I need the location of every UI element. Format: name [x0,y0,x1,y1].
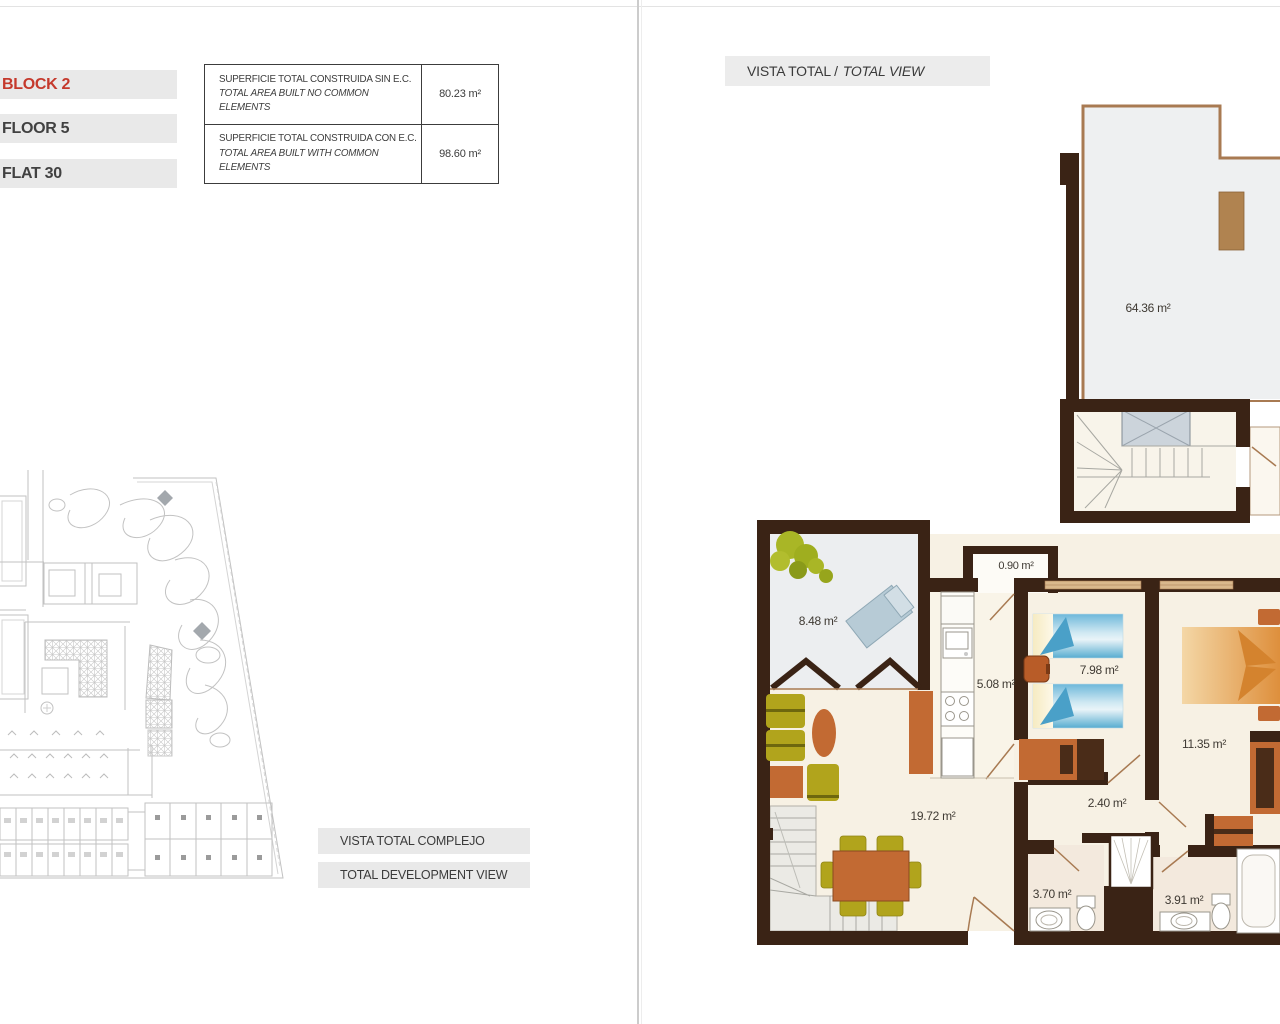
row2-title-en: TOTAL AREA BUILT WITH COMMON ELEMENTS [219,147,421,175]
area-summary-table: SUPERFICIE TOTAL CONSTRUIDA SIN E.C. TOT… [204,64,499,184]
floor-label: FLOOR 5 [2,120,69,138]
armchair [807,764,839,801]
dining-table [833,851,909,901]
storage-area-label: 0.90 m² [998,560,1033,572]
row2-value: 98.60 m² [422,125,498,184]
row1-value: 80.23 m² [422,65,498,124]
page-top-rule [0,6,1280,7]
table-row: SUPERFICIE TOTAL CONSTRUIDA SIN E.C. TOT… [205,65,498,125]
dresser [1019,739,1104,780]
nightstand [1024,656,1050,682]
twin-bed [1033,684,1123,728]
kitchen-area-label: 5.08 m² [977,677,1016,691]
flat-floor-plan [640,40,1280,960]
nightstand [1258,609,1280,625]
armchair [766,730,805,761]
bathroom1-area-label: 3.70 m² [1033,887,1072,901]
block-label: BLOCK 2 [2,76,70,94]
table-row: SUPERFICIE TOTAL CONSTRUIDA CON E.C. TOT… [205,125,498,184]
nightstand [1258,706,1280,721]
solarium-sunbed [1219,192,1244,250]
shower [1110,835,1152,888]
living-area-label: 19.72 m² [911,809,956,823]
floor-plan-sheet: BLOCK 2 FLOOR 5 FLAT 30 SUPERFICIE TOTAL… [0,0,1280,1024]
armchair [766,694,805,728]
bedroom2-area-label: 7.98 m² [1080,663,1119,677]
development-site-plan [0,455,320,940]
flat-label: FLAT 30 [2,165,62,183]
floor-label-bar: FLOOR 5 [0,114,177,143]
solarium-area-label: 64.36 m² [1126,301,1171,315]
row1-title-es: SUPERFICIE TOTAL CONSTRUIDA SIN E.C. [219,73,421,87]
bedroom1-area-label: 11.35 m² [1182,737,1226,751]
bathroom2-area-label: 3.91 m² [1165,893,1204,907]
flat-label-bar: FLAT 30 [0,159,177,188]
twin-bed [1033,614,1123,658]
site-caption-en-bar: TOTAL DEVELOPMENT VIEW [318,862,530,888]
hallway-area-label: 2.40 m² [1088,796,1127,810]
row1-title-en: TOTAL AREA BUILT NO COMMON ELEMENTS [219,87,421,115]
side-table [770,766,803,798]
kitchen-fittings [941,592,974,778]
site-caption-en: TOTAL DEVELOPMENT VIEW [340,868,507,882]
page-divider [637,0,639,1024]
site-caption-es: VISTA TOTAL COMPLEJO [340,834,485,848]
terrace-area-label: 8.48 m² [799,614,838,628]
tv-cabinet [909,691,933,774]
coffee-table [812,709,836,757]
site-caption-es-bar: VISTA TOTAL COMPLEJO [318,828,530,854]
row2-title-es: SUPERFICIE TOTAL CONSTRUIDA CON E.C. [219,132,421,146]
windows [1045,581,1233,589]
double-bed [1182,627,1280,704]
bathtub [1237,849,1280,933]
block-label-bar: BLOCK 2 [0,70,177,99]
